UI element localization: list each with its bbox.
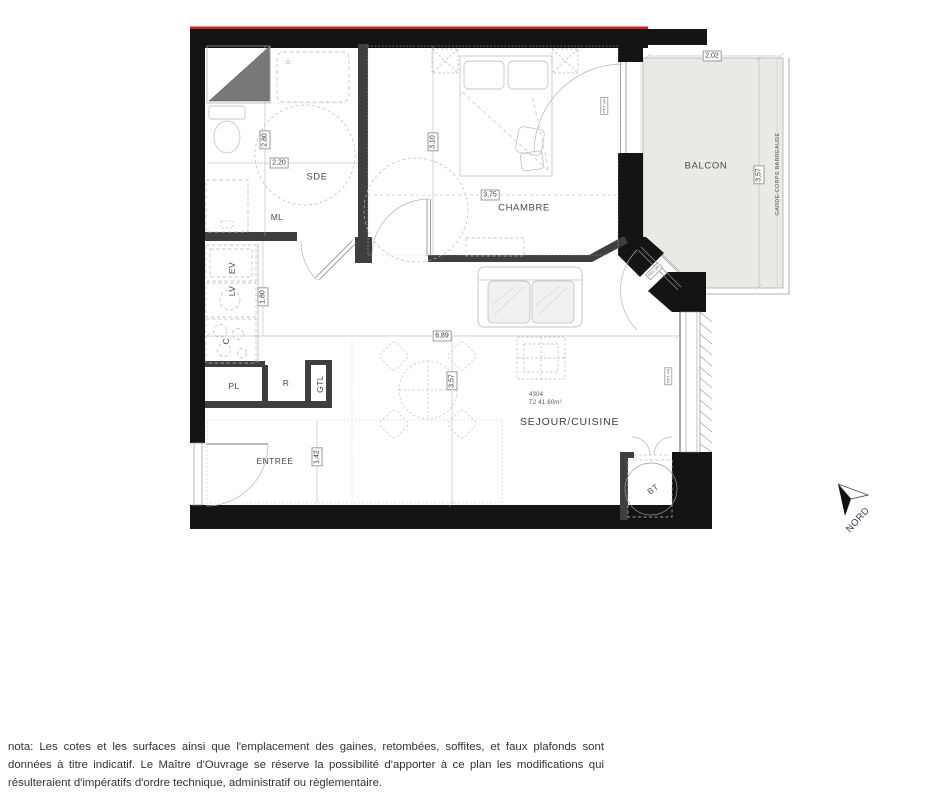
dim-entree-height: 1,42 [312, 448, 323, 467]
dim-sde-height: 2,80 [260, 131, 271, 150]
label-cooktop: C [221, 338, 231, 345]
dresser [466, 238, 524, 256]
window-tag-sejour-window: OF1 VR [664, 367, 672, 385]
nota-text: nota: Les cotes et les surfaces ainsi qu… [8, 738, 604, 792]
dim-kitchen-height: 1,80 [258, 288, 269, 307]
dim-chambre-width: 3,75 [481, 190, 500, 201]
nota-line-1: nota: Les cotes et les surfaces ainsi qu… [8, 738, 604, 756]
label-dishwasher: LV [227, 286, 237, 297]
window-tag-chambre: PF1 VR [600, 97, 608, 115]
room-label-balcon: BALCON [685, 161, 728, 172]
label-washing-machine: ML [271, 212, 284, 222]
floor-plan-drawing [0, 0, 927, 800]
dim-sejour-width: 6,89 [433, 331, 452, 342]
nota-line-3: résulteraient d'impératifs d'ordre techn… [8, 774, 604, 792]
nightstands [432, 49, 578, 73]
window-sill-hatch [700, 312, 712, 452]
dim-balcon-height: 3,57 [754, 166, 765, 185]
room-label-entree: ENTREE [257, 456, 294, 466]
room-label-sde: SDE [306, 172, 327, 183]
dim-sejour-height: 3,57 [447, 372, 458, 391]
red-accent-line [190, 27, 648, 222]
unit-area: T2 41.60m² [529, 400, 562, 406]
shower [209, 46, 270, 101]
doors [206, 64, 672, 506]
dim-balcon-width: 2,02 [703, 51, 722, 62]
room-outlines [207, 46, 618, 503]
dim-chambre-height: 3,10 [428, 133, 439, 152]
toilet [209, 106, 245, 153]
label-fridge: R [283, 378, 290, 388]
dim-sde-width: 2,20 [270, 158, 289, 169]
room-label-sejour-cuisine: SEJOUR/CUISINE [520, 416, 619, 428]
dining-table [378, 340, 477, 439]
turning-circle-sde [255, 105, 355, 205]
unit-number: 4304 [529, 392, 543, 398]
nota-line-2: données à titre indicatif. Le Maître d'O… [8, 756, 604, 774]
bed [460, 56, 552, 176]
windows [193, 62, 700, 505]
label-gtl: GTL [315, 375, 325, 393]
label-closet-pl: PL [228, 381, 239, 391]
floor-plan-page: SDE CHAMBRE BALCON ENTREE SEJOUR/CUISINE… [0, 0, 927, 800]
coffee-table [517, 337, 565, 379]
furniture [206, 46, 677, 517]
sofa [478, 267, 582, 327]
room-label-chambre: CHAMBRE [498, 203, 550, 214]
shower-tray [277, 52, 349, 102]
balcony-slab [643, 58, 789, 294]
label-sink: EV [227, 262, 237, 274]
washing-machine [206, 180, 248, 232]
railing-annotation: GARDE-CORPS BARREAUDE [775, 132, 781, 215]
turning-circle-chambre [364, 158, 468, 262]
